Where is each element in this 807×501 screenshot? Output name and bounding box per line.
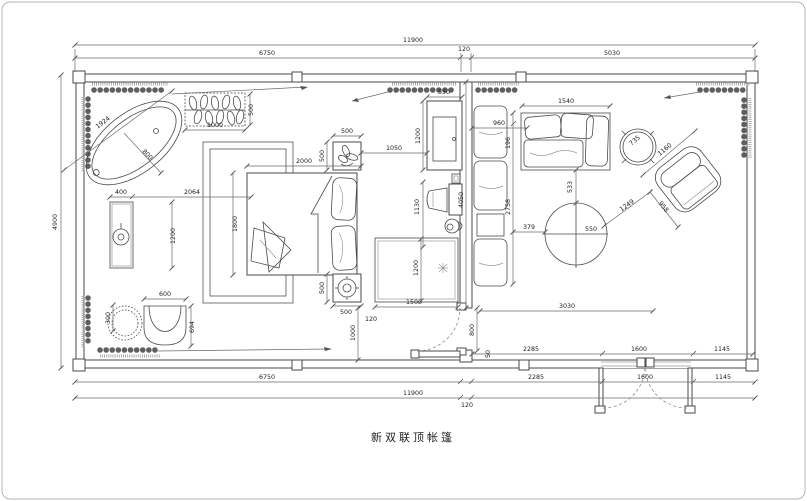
sofa-cushion <box>474 161 507 210</box>
dim-bed-width: 2000 <box>296 158 312 165</box>
dim-armchair-d1: 1160 <box>657 142 674 158</box>
dim-inner-b: 1600 <box>631 346 647 353</box>
corner-post <box>746 71 758 83</box>
dim-nightstand-gap: 120 <box>365 316 377 323</box>
dim-grid-rug-height: 1200 <box>413 260 420 276</box>
door-leaf <box>599 368 603 408</box>
door-swing-arc <box>603 366 645 408</box>
sink <box>113 229 129 245</box>
dim-nightstand-to-wall: 1000 <box>350 325 357 341</box>
dim-door-gap: 50 <box>485 350 492 358</box>
dim-door-height: 800 <box>469 324 476 336</box>
floor-plan-canvas: { "title": "新双联顶帐篷", "dims": { "top_tota… <box>0 0 807 501</box>
sofa-chaise <box>585 116 609 167</box>
dim-side-table: 735 <box>628 134 642 147</box>
dim-basin-width: 400 <box>115 189 127 196</box>
sofa-frame <box>521 113 610 170</box>
corner-post <box>73 359 85 371</box>
wall-post <box>292 72 302 82</box>
dim-sofa-segment: 196 <box>505 137 512 149</box>
dim-grid-rug-width: 1500 <box>406 299 422 306</box>
door-swing-arc <box>645 366 687 408</box>
wall-hook <box>452 174 460 183</box>
dim-bottom-total: 11900 <box>403 390 423 397</box>
dim-plant-height: 500 <box>248 104 255 116</box>
dim-top-left: 6750 <box>259 50 275 57</box>
dim-top-total: 11900 <box>403 37 423 44</box>
dim-living-width: 3030 <box>559 303 575 310</box>
dim-bottom-a: 2285 <box>528 374 544 381</box>
drawing-title: 新双联顶帐篷 <box>371 430 455 444</box>
tub-chair <box>144 306 186 345</box>
dim-plant-width: 1000 <box>207 122 223 129</box>
dim-armchair-d3: 958 <box>657 200 670 214</box>
dim-nightstand-top-width: 500 <box>341 128 353 135</box>
side-table <box>620 129 656 165</box>
dim-basin-length: 1200 <box>170 228 177 244</box>
dim-bottom-b: 1600 <box>637 374 653 381</box>
dim-sofa-length: 2758 <box>505 199 512 215</box>
corner-post <box>746 359 758 371</box>
wall-post <box>292 360 302 370</box>
dim-inner-c: 1145 <box>714 346 730 353</box>
armchair-back <box>658 149 704 190</box>
door-leaf <box>415 351 460 357</box>
sofa-cushion <box>474 106 507 158</box>
dim-nightstand-bottom-height: 500 <box>319 282 326 294</box>
double-door <box>595 358 695 413</box>
dim-inner-a: 2285 <box>523 346 539 353</box>
dim-sofa-depth: 960 <box>493 120 505 127</box>
dim-top-mid: 120 <box>458 46 470 53</box>
floor-plan-svg: 11900 6750 120 5030 4900 6750 2285 1600 … <box>0 0 807 501</box>
dim-sofa-top-width: 1540 <box>558 98 574 105</box>
dim-cabinet-height: 1200 <box>415 128 422 144</box>
dim-tub-chair-width: 600 <box>159 291 171 298</box>
dim-partition-length: 4050 <box>458 192 465 208</box>
dim-cabinet-width: 550 <box>438 89 450 96</box>
dim-nightstand-top-height: 500 <box>319 150 326 162</box>
sofa-side-table <box>477 214 504 236</box>
drain <box>154 129 159 134</box>
dim-basin-gap: 2064 <box>184 189 200 196</box>
l-sofa <box>474 106 610 286</box>
basin-counter <box>110 202 133 268</box>
dim-bottom-left: 6750 <box>259 374 275 381</box>
wall-post <box>519 360 529 370</box>
dim-left-height: 4900 <box>52 214 59 230</box>
door-leaf <box>688 368 692 408</box>
dimensions: 11900 6750 120 5030 4900 6750 2285 1600 … <box>52 37 755 409</box>
dim-table-offset-top: 533 <box>567 181 574 193</box>
dim-top-right: 5030 <box>604 50 620 57</box>
sparkle-icon <box>438 263 448 273</box>
dim-nightstand-bottom-width: 500 <box>340 309 352 316</box>
dim-tub-chair-height: 694 <box>189 321 196 333</box>
coffee-table <box>544 201 608 268</box>
dim-stool: 300 <box>105 312 112 324</box>
door-frame-block <box>457 303 466 310</box>
single-door <box>411 308 460 358</box>
armchair-seat <box>669 163 720 211</box>
dim-bottom-mid: 120 <box>461 402 473 409</box>
dim-table-radius: 550 <box>585 226 597 233</box>
chair <box>427 188 447 212</box>
dim-bottom-c: 1145 <box>715 374 731 381</box>
dim-armchair-d2: 1249 <box>619 198 636 213</box>
dim-tub-diagonal: 1924 <box>95 115 112 130</box>
wall-post <box>516 72 526 82</box>
corner-post <box>73 71 85 83</box>
sofa-cushion <box>474 239 507 286</box>
sofa-pillow <box>524 114 562 139</box>
dim-desk-chair: 1130 <box>414 199 421 215</box>
door-swing-arc <box>417 308 460 351</box>
tv-cabinet <box>427 101 462 183</box>
dim-rug-height: 1800 <box>232 216 239 232</box>
desk-and-chair <box>427 184 462 233</box>
bed <box>247 173 357 275</box>
dim-table-offset-left: 379 <box>523 224 535 231</box>
dim-cabinet-gap: 1050 <box>386 145 402 152</box>
door-stile <box>637 358 645 367</box>
sofa-seat <box>524 140 583 167</box>
nightstand-bottom <box>333 274 361 302</box>
curtains <box>83 84 750 356</box>
door-stile <box>646 358 654 367</box>
